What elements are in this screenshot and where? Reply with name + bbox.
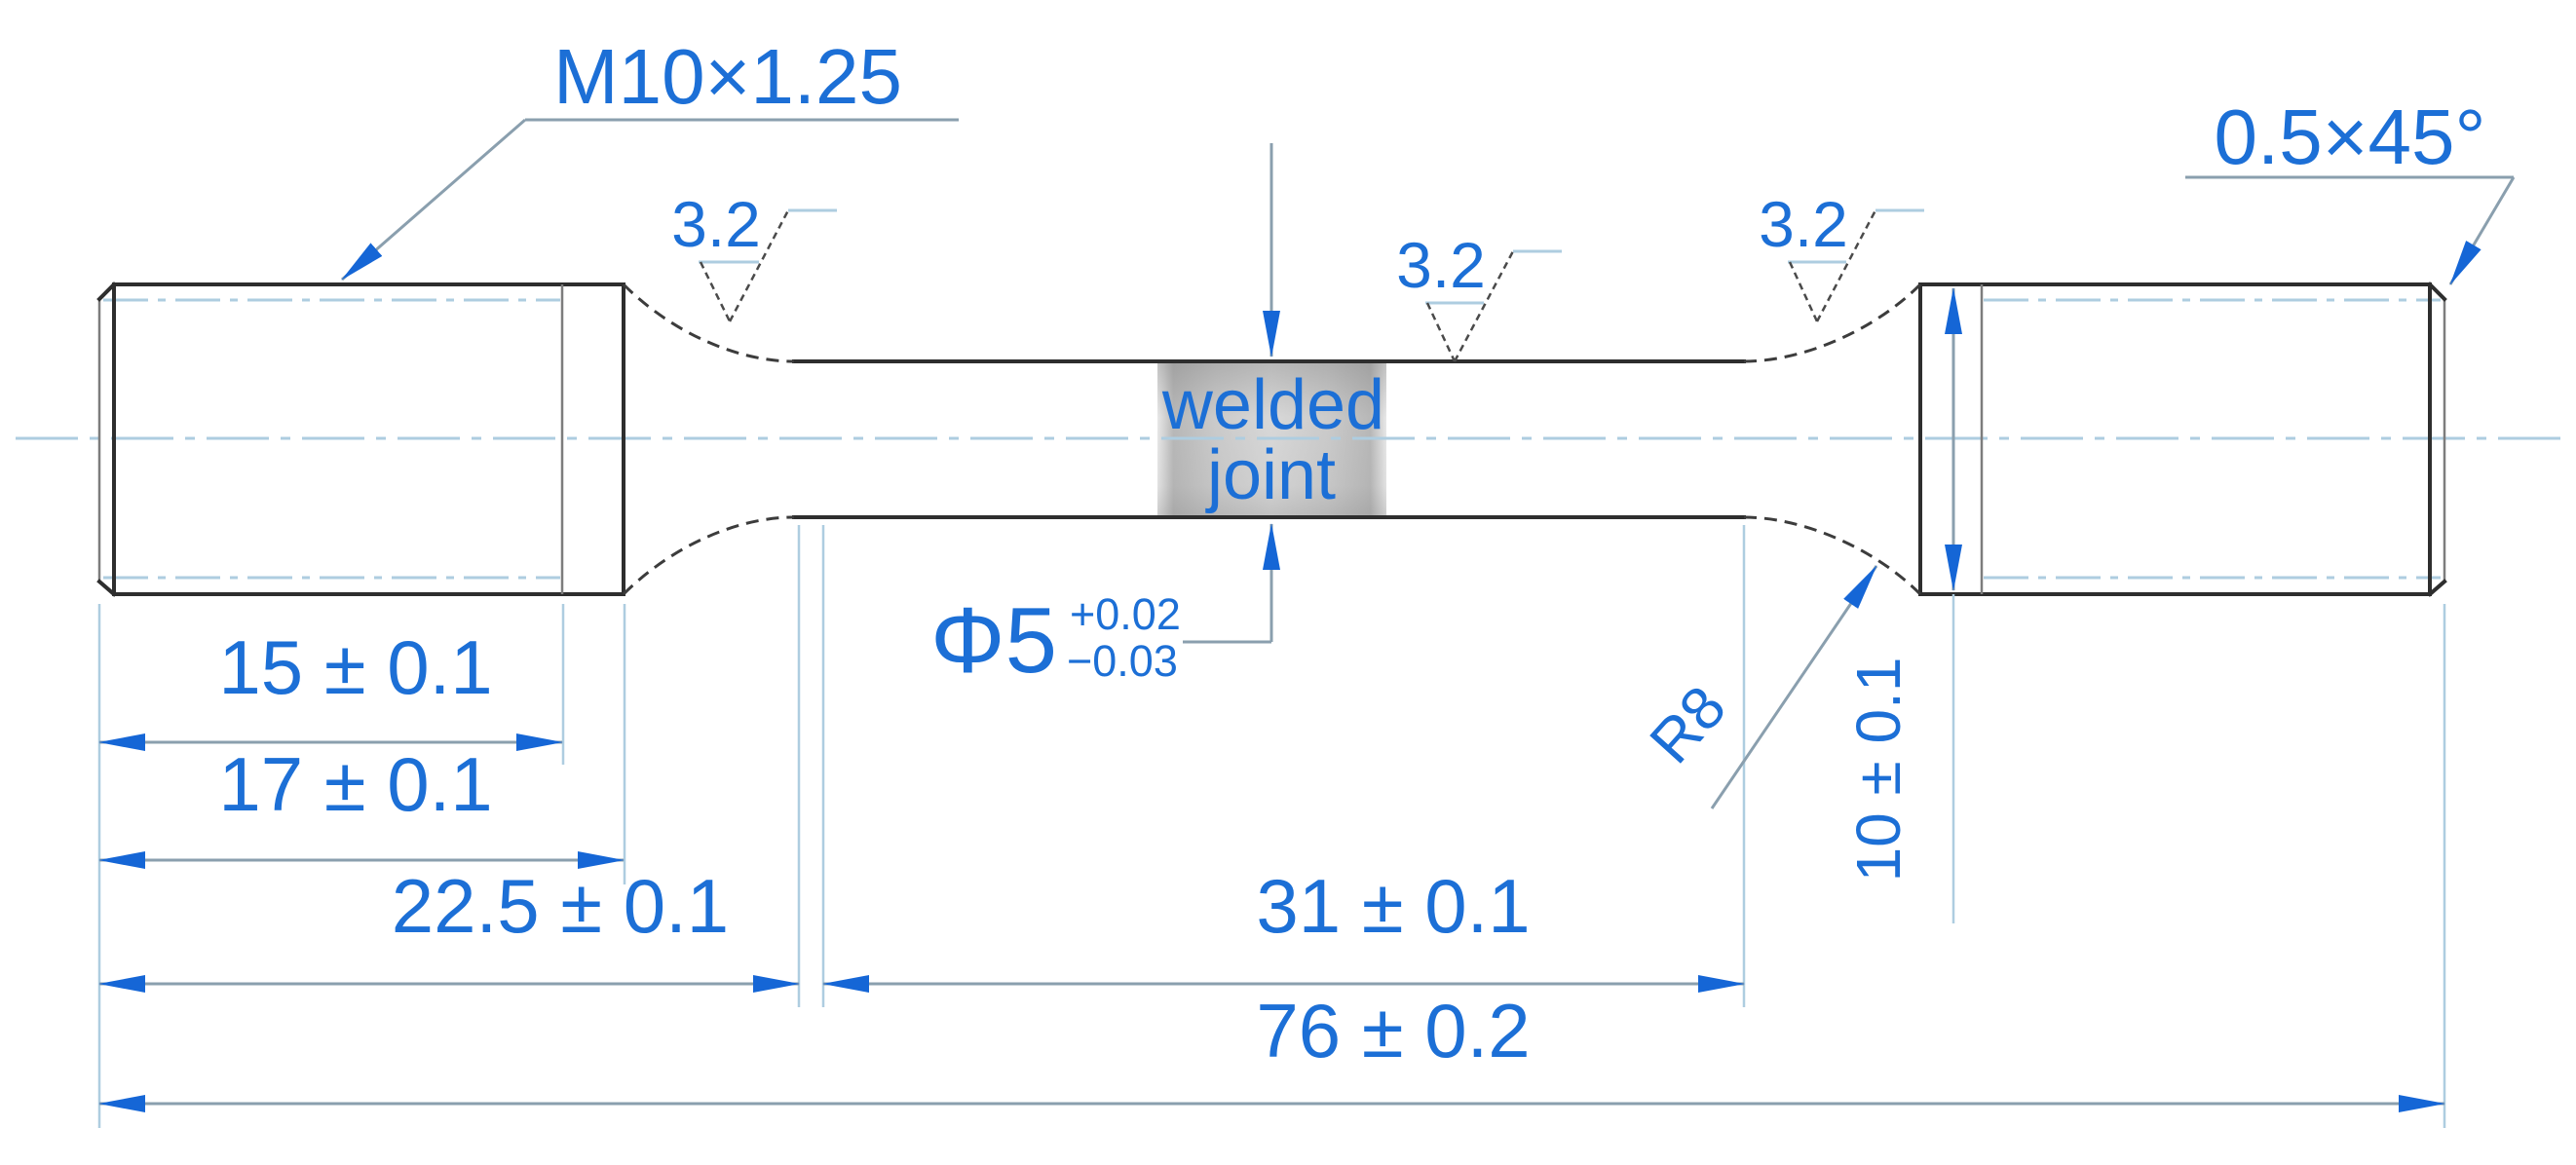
diameter-callout: Φ5 [930,588,1057,693]
chamfer-callout: 0.5×45° [2215,94,2486,180]
fillet-radius-callout: R8 [1638,674,1739,776]
gauge-length-dim: 31 ± 0.1 [1256,863,1530,949]
left-section-dim: 22.5 ± 0.1 [392,863,729,949]
grip-length-dim: 17 ± 0.1 [218,741,492,827]
chamfer-leader [2450,177,2514,284]
tolerance-minus: −0.03 [1067,636,1178,686]
tolerance-plus: +0.02 [1070,589,1181,639]
specimen-drawing: M10×1.25 0.5×45° 3.2 3.2 3.2 welded join… [0,0,2576,1165]
roughness-value-left: 3.2 [671,188,761,260]
grip-diameter-dim: 10 ± 0.1 [1843,658,1913,883]
weld-label-line1: welded [1161,366,1384,444]
thread-leader [342,120,525,280]
roughness-value-right: 3.2 [1759,188,1848,260]
thread-callout: M10×1.25 [553,33,902,120]
weld-label-line2: joint [1205,436,1336,514]
thread-length-dim: 15 ± 0.1 [218,624,492,710]
leader-lines [342,120,2514,808]
roughness-value-middle: 3.2 [1396,229,1486,301]
total-length-dim: 76 ± 0.2 [1256,988,1530,1073]
drawing-canvas: M10×1.25 0.5×45° 3.2 3.2 3.2 welded join… [0,0,2576,1165]
